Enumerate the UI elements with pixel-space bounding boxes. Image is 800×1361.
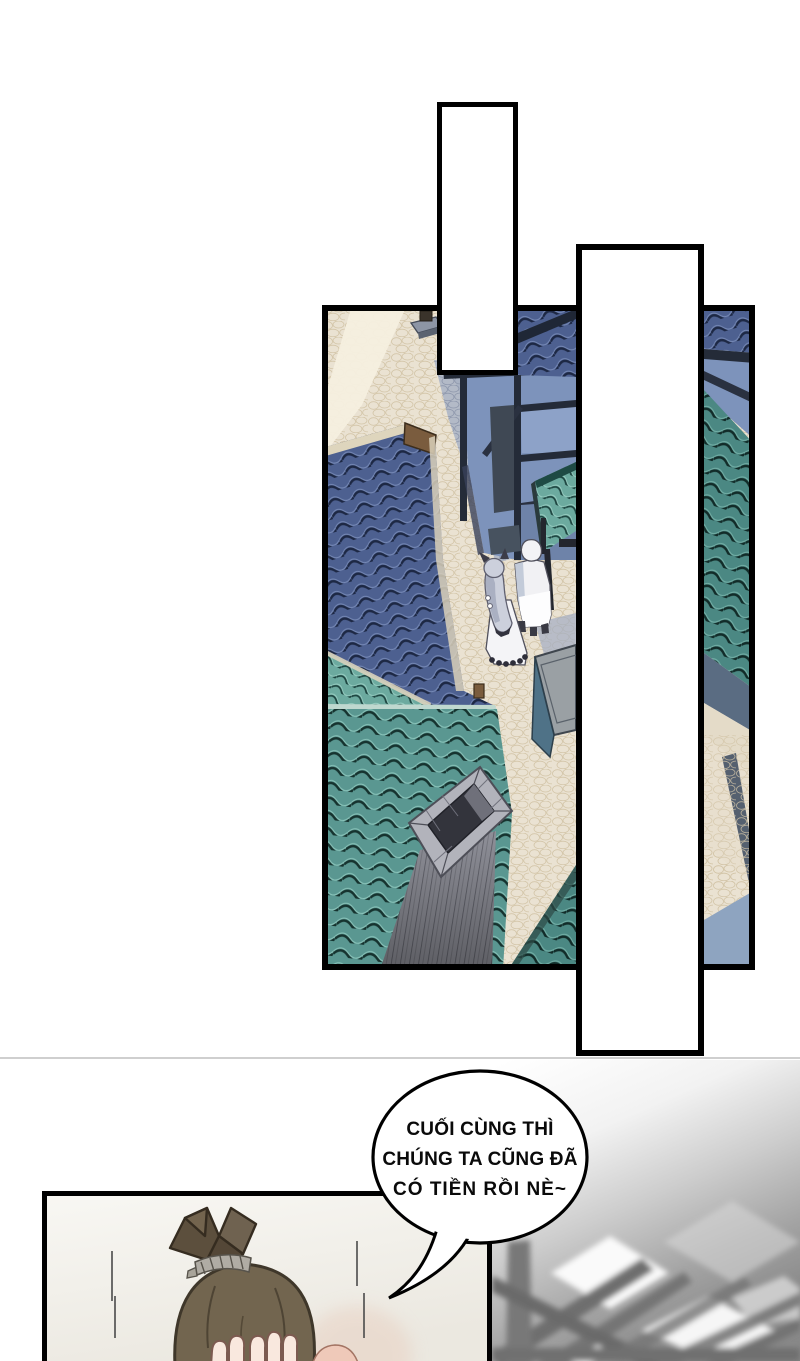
svg-text:CUỐI CÙNG THÌ: CUỐI CÙNG THÌ — [406, 1118, 553, 1140]
svg-text:CHÚNG TA CŨNG ĐÃ: CHÚNG TA CŨNG ĐÃ — [382, 1148, 577, 1170]
svg-text:CÓ TIỀN RỒI NÈ~: CÓ TIỀN RỒI NÈ~ — [393, 1178, 567, 1200]
